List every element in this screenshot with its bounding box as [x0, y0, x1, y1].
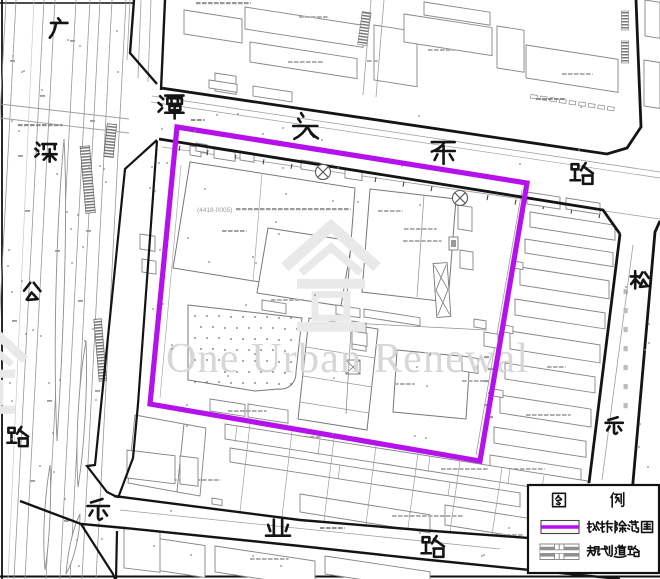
svg-text:(4418-0005): (4418-0005) — [197, 207, 232, 214]
svg-text:One Urban Renewal: One Urban Renewal — [166, 336, 529, 382]
